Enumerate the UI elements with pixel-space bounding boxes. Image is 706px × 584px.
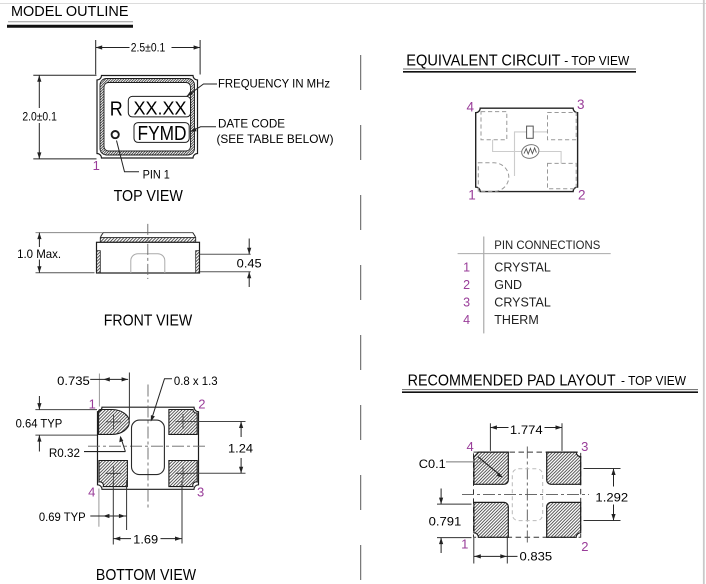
svg-text:TOP VIEW: TOP VIEW bbox=[114, 188, 184, 205]
svg-text:0.735: 0.735 bbox=[57, 374, 90, 388]
svg-text:0.45: 0.45 bbox=[237, 256, 262, 270]
svg-text:1: 1 bbox=[463, 261, 470, 275]
svg-text:PIN CONNECTIONS: PIN CONNECTIONS bbox=[494, 238, 600, 252]
svg-text:C0.1: C0.1 bbox=[419, 457, 446, 471]
svg-text:0.64 TYP: 0.64 TYP bbox=[16, 416, 63, 430]
svg-text:CRYSTAL: CRYSTAL bbox=[494, 296, 551, 310]
svg-text:0.69 TYP: 0.69 TYP bbox=[39, 510, 86, 524]
svg-text:2: 2 bbox=[581, 539, 588, 554]
svg-text:R: R bbox=[110, 98, 123, 120]
svg-text:FRONT VIEW: FRONT VIEW bbox=[104, 313, 193, 330]
svg-text:3: 3 bbox=[581, 439, 588, 454]
svg-text:1: 1 bbox=[93, 158, 100, 173]
svg-text:3: 3 bbox=[197, 485, 204, 500]
svg-text:4: 4 bbox=[463, 313, 470, 327]
svg-text:1.69: 1.69 bbox=[133, 533, 158, 547]
svg-text:2.0±0.1: 2.0±0.1 bbox=[22, 109, 57, 123]
svg-text:- TOP VIEW: - TOP VIEW bbox=[564, 54, 629, 68]
svg-text:1: 1 bbox=[468, 188, 476, 203]
svg-text:1: 1 bbox=[461, 537, 468, 552]
svg-text:PIN 1: PIN 1 bbox=[143, 168, 170, 182]
svg-text:3: 3 bbox=[463, 296, 470, 310]
svg-text:2: 2 bbox=[198, 396, 205, 411]
svg-text:CRYSTAL: CRYSTAL bbox=[494, 261, 551, 275]
svg-text:DATE CODE: DATE CODE bbox=[218, 117, 285, 131]
svg-text:1.24: 1.24 bbox=[228, 441, 253, 455]
svg-text:MODEL OUTLINE: MODEL OUTLINE bbox=[11, 3, 129, 20]
svg-text:2: 2 bbox=[463, 278, 470, 292]
svg-text:0.8 x 1.3: 0.8 x 1.3 bbox=[174, 374, 218, 388]
svg-text:2: 2 bbox=[578, 188, 586, 203]
svg-text:BOTTOM VIEW: BOTTOM VIEW bbox=[96, 567, 197, 584]
svg-text:FYMD: FYMD bbox=[138, 123, 187, 145]
svg-text:1.774: 1.774 bbox=[510, 423, 543, 437]
svg-text:R0.32: R0.32 bbox=[49, 446, 80, 460]
svg-text:1.0 Max.: 1.0 Max. bbox=[17, 247, 61, 261]
svg-text:0.791: 0.791 bbox=[429, 514, 462, 528]
svg-text:1: 1 bbox=[89, 396, 96, 411]
svg-text:THERM: THERM bbox=[494, 313, 538, 327]
svg-text:1.292: 1.292 bbox=[595, 491, 628, 505]
svg-text:- TOP VIEW: - TOP VIEW bbox=[621, 374, 686, 388]
svg-text:4: 4 bbox=[467, 100, 475, 115]
svg-text:4: 4 bbox=[88, 485, 95, 500]
svg-text:RECOMMENDED PAD LAYOUT: RECOMMENDED PAD LAYOUT bbox=[408, 372, 616, 389]
svg-text:FREQUENCY IN MHz: FREQUENCY IN MHz bbox=[218, 77, 330, 91]
svg-text:0.835: 0.835 bbox=[520, 549, 553, 563]
svg-text:3: 3 bbox=[577, 97, 585, 112]
svg-text:EQUIVALENT CIRCUIT: EQUIVALENT CIRCUIT bbox=[406, 53, 560, 70]
svg-text:GND: GND bbox=[494, 278, 522, 292]
svg-text:(SEE TABLE BELOW): (SEE TABLE BELOW) bbox=[217, 132, 334, 146]
svg-text:4: 4 bbox=[466, 439, 473, 454]
svg-text:2.5±0.1: 2.5±0.1 bbox=[131, 41, 166, 55]
svg-text:XX.XX: XX.XX bbox=[134, 98, 187, 119]
